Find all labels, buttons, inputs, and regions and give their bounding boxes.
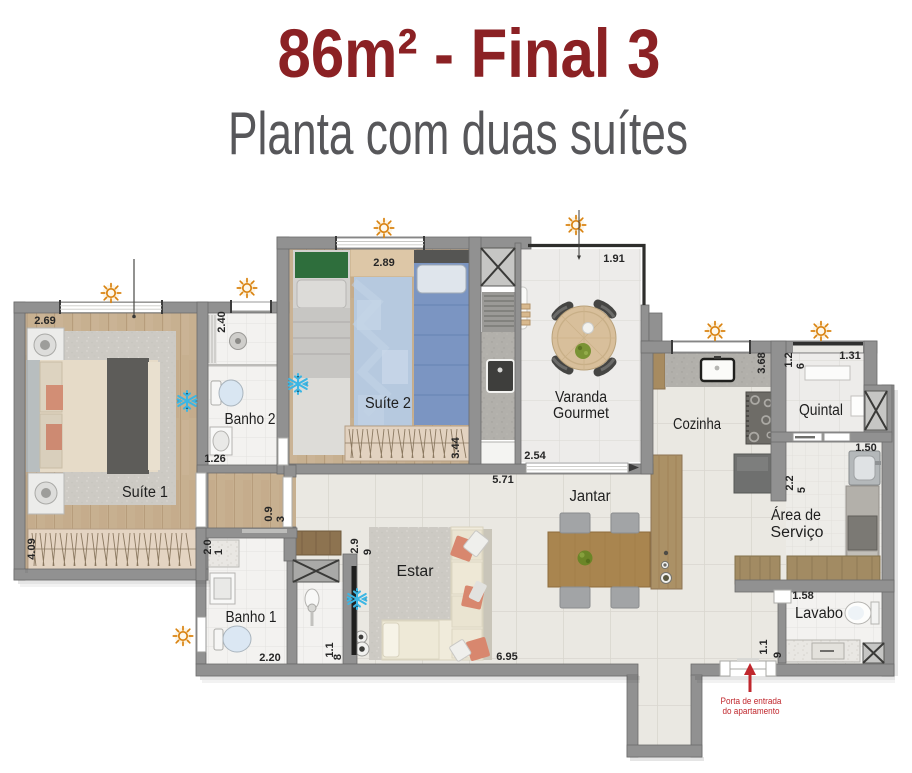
svg-text:2.40: 2.40 bbox=[216, 311, 228, 332]
svg-text:1: 1 bbox=[213, 549, 225, 555]
svg-text:Porta de entrada: Porta de entrada bbox=[721, 696, 782, 706]
svg-text:Serviço: Serviço bbox=[771, 524, 824, 541]
svg-text:Área de: Área de bbox=[771, 507, 821, 524]
svg-text:do apartamento: do apartamento bbox=[723, 706, 780, 716]
svg-text:Banho 1: Banho 1 bbox=[226, 609, 277, 626]
svg-text:3.44: 3.44 bbox=[450, 436, 462, 458]
svg-text:1.58: 1.58 bbox=[792, 590, 813, 602]
svg-text:1.50: 1.50 bbox=[855, 442, 876, 454]
svg-text:0.9: 0.9 bbox=[263, 506, 275, 521]
svg-text:2.9: 2.9 bbox=[349, 538, 361, 553]
svg-text:Suíte 1: Suíte 1 bbox=[122, 484, 168, 501]
svg-text:2.20: 2.20 bbox=[259, 652, 280, 664]
svg-text:2.89: 2.89 bbox=[373, 257, 394, 269]
svg-text:2.2: 2.2 bbox=[784, 475, 796, 490]
svg-text:Gourmet: Gourmet bbox=[553, 405, 610, 422]
svg-text:1.91: 1.91 bbox=[603, 253, 624, 265]
svg-text:Lavabo: Lavabo bbox=[795, 605, 843, 622]
svg-text:8: 8 bbox=[332, 654, 344, 660]
svg-text:Suíte 2: Suíte 2 bbox=[365, 395, 411, 412]
svg-text:Quintal: Quintal bbox=[799, 402, 843, 419]
svg-text:3.68: 3.68 bbox=[756, 352, 768, 373]
svg-text:Cozinha: Cozinha bbox=[673, 416, 721, 433]
svg-text:6.95: 6.95 bbox=[496, 651, 517, 663]
svg-text:1.31: 1.31 bbox=[839, 350, 860, 362]
svg-text:1.26: 1.26 bbox=[204, 453, 225, 465]
svg-text:Jantar: Jantar bbox=[570, 488, 611, 505]
svg-text:Planta com duas suítes: Planta com duas suítes bbox=[228, 100, 688, 167]
svg-text:2.54: 2.54 bbox=[524, 450, 546, 462]
svg-text:4.09: 4.09 bbox=[26, 538, 38, 559]
svg-text:3: 3 bbox=[275, 516, 287, 522]
svg-text:5.71: 5.71 bbox=[492, 474, 513, 486]
svg-text:1.1: 1.1 bbox=[758, 639, 770, 654]
svg-text:9: 9 bbox=[362, 549, 374, 555]
svg-text:Varanda: Varanda bbox=[555, 389, 607, 406]
svg-text:Banho 2: Banho 2 bbox=[225, 411, 276, 428]
svg-text:9: 9 bbox=[772, 652, 784, 658]
svg-text:6: 6 bbox=[795, 363, 807, 369]
svg-text:Estar: Estar bbox=[397, 563, 434, 580]
svg-text:2.69: 2.69 bbox=[34, 315, 55, 327]
svg-text:1.2: 1.2 bbox=[783, 352, 795, 367]
svg-text:5: 5 bbox=[796, 487, 808, 493]
svg-text:86m² - Final 3: 86m² - Final 3 bbox=[278, 15, 661, 92]
